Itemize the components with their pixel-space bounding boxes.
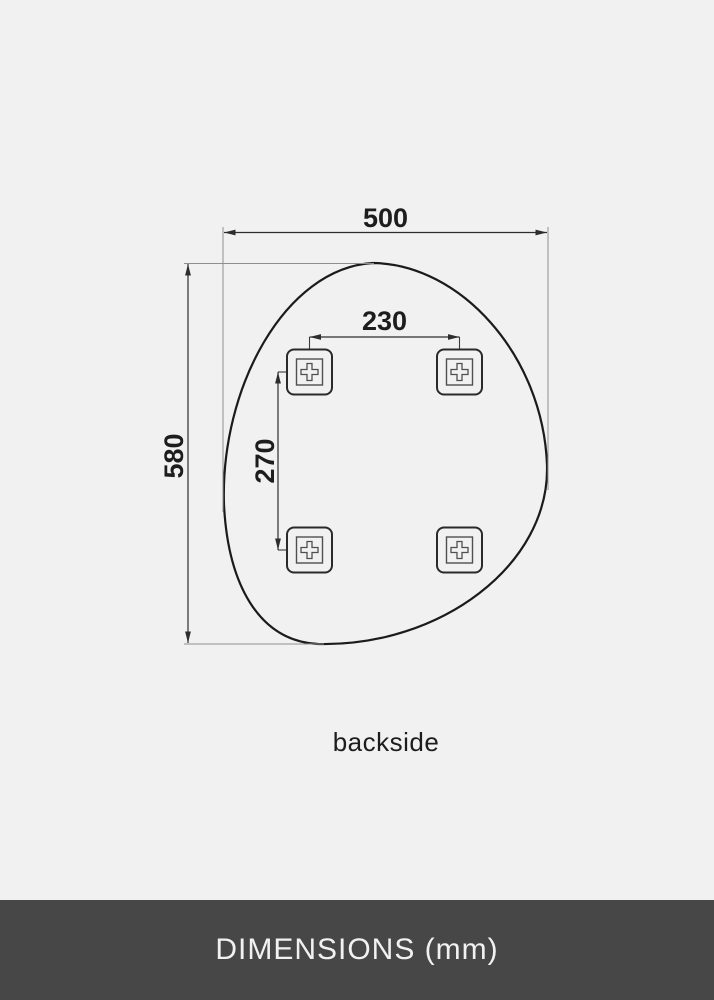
drawing-canvas: 500 580 230 270 xyxy=(0,0,714,900)
mount-bracket-top-right-icon xyxy=(437,350,482,395)
drawing-area: 500 580 230 270 xyxy=(0,0,714,900)
caption-backside: backside xyxy=(333,727,440,757)
dimension-label-width: 500 xyxy=(363,203,408,233)
dimension-label-mount-vertical: 270 xyxy=(250,438,280,483)
dimension-label-height: 580 xyxy=(159,433,189,478)
dimension-mount-spacing-vertical: 270 xyxy=(250,372,288,550)
dimension-mount-spacing-horizontal: 230 xyxy=(310,306,460,350)
dimension-drawing-page: 500 580 230 270 xyxy=(0,0,714,1000)
footer-bar: DIMENSIONS (mm) xyxy=(0,900,714,1000)
mount-bracket-bottom-left-icon xyxy=(287,528,332,573)
mount-bracket-top-left-icon xyxy=(287,350,332,395)
footer-title: DIMENSIONS (mm) xyxy=(215,933,498,967)
mount-brackets xyxy=(287,350,482,573)
mount-bracket-bottom-right-icon xyxy=(437,528,482,573)
dimension-label-mount-horizontal: 230 xyxy=(362,306,407,336)
